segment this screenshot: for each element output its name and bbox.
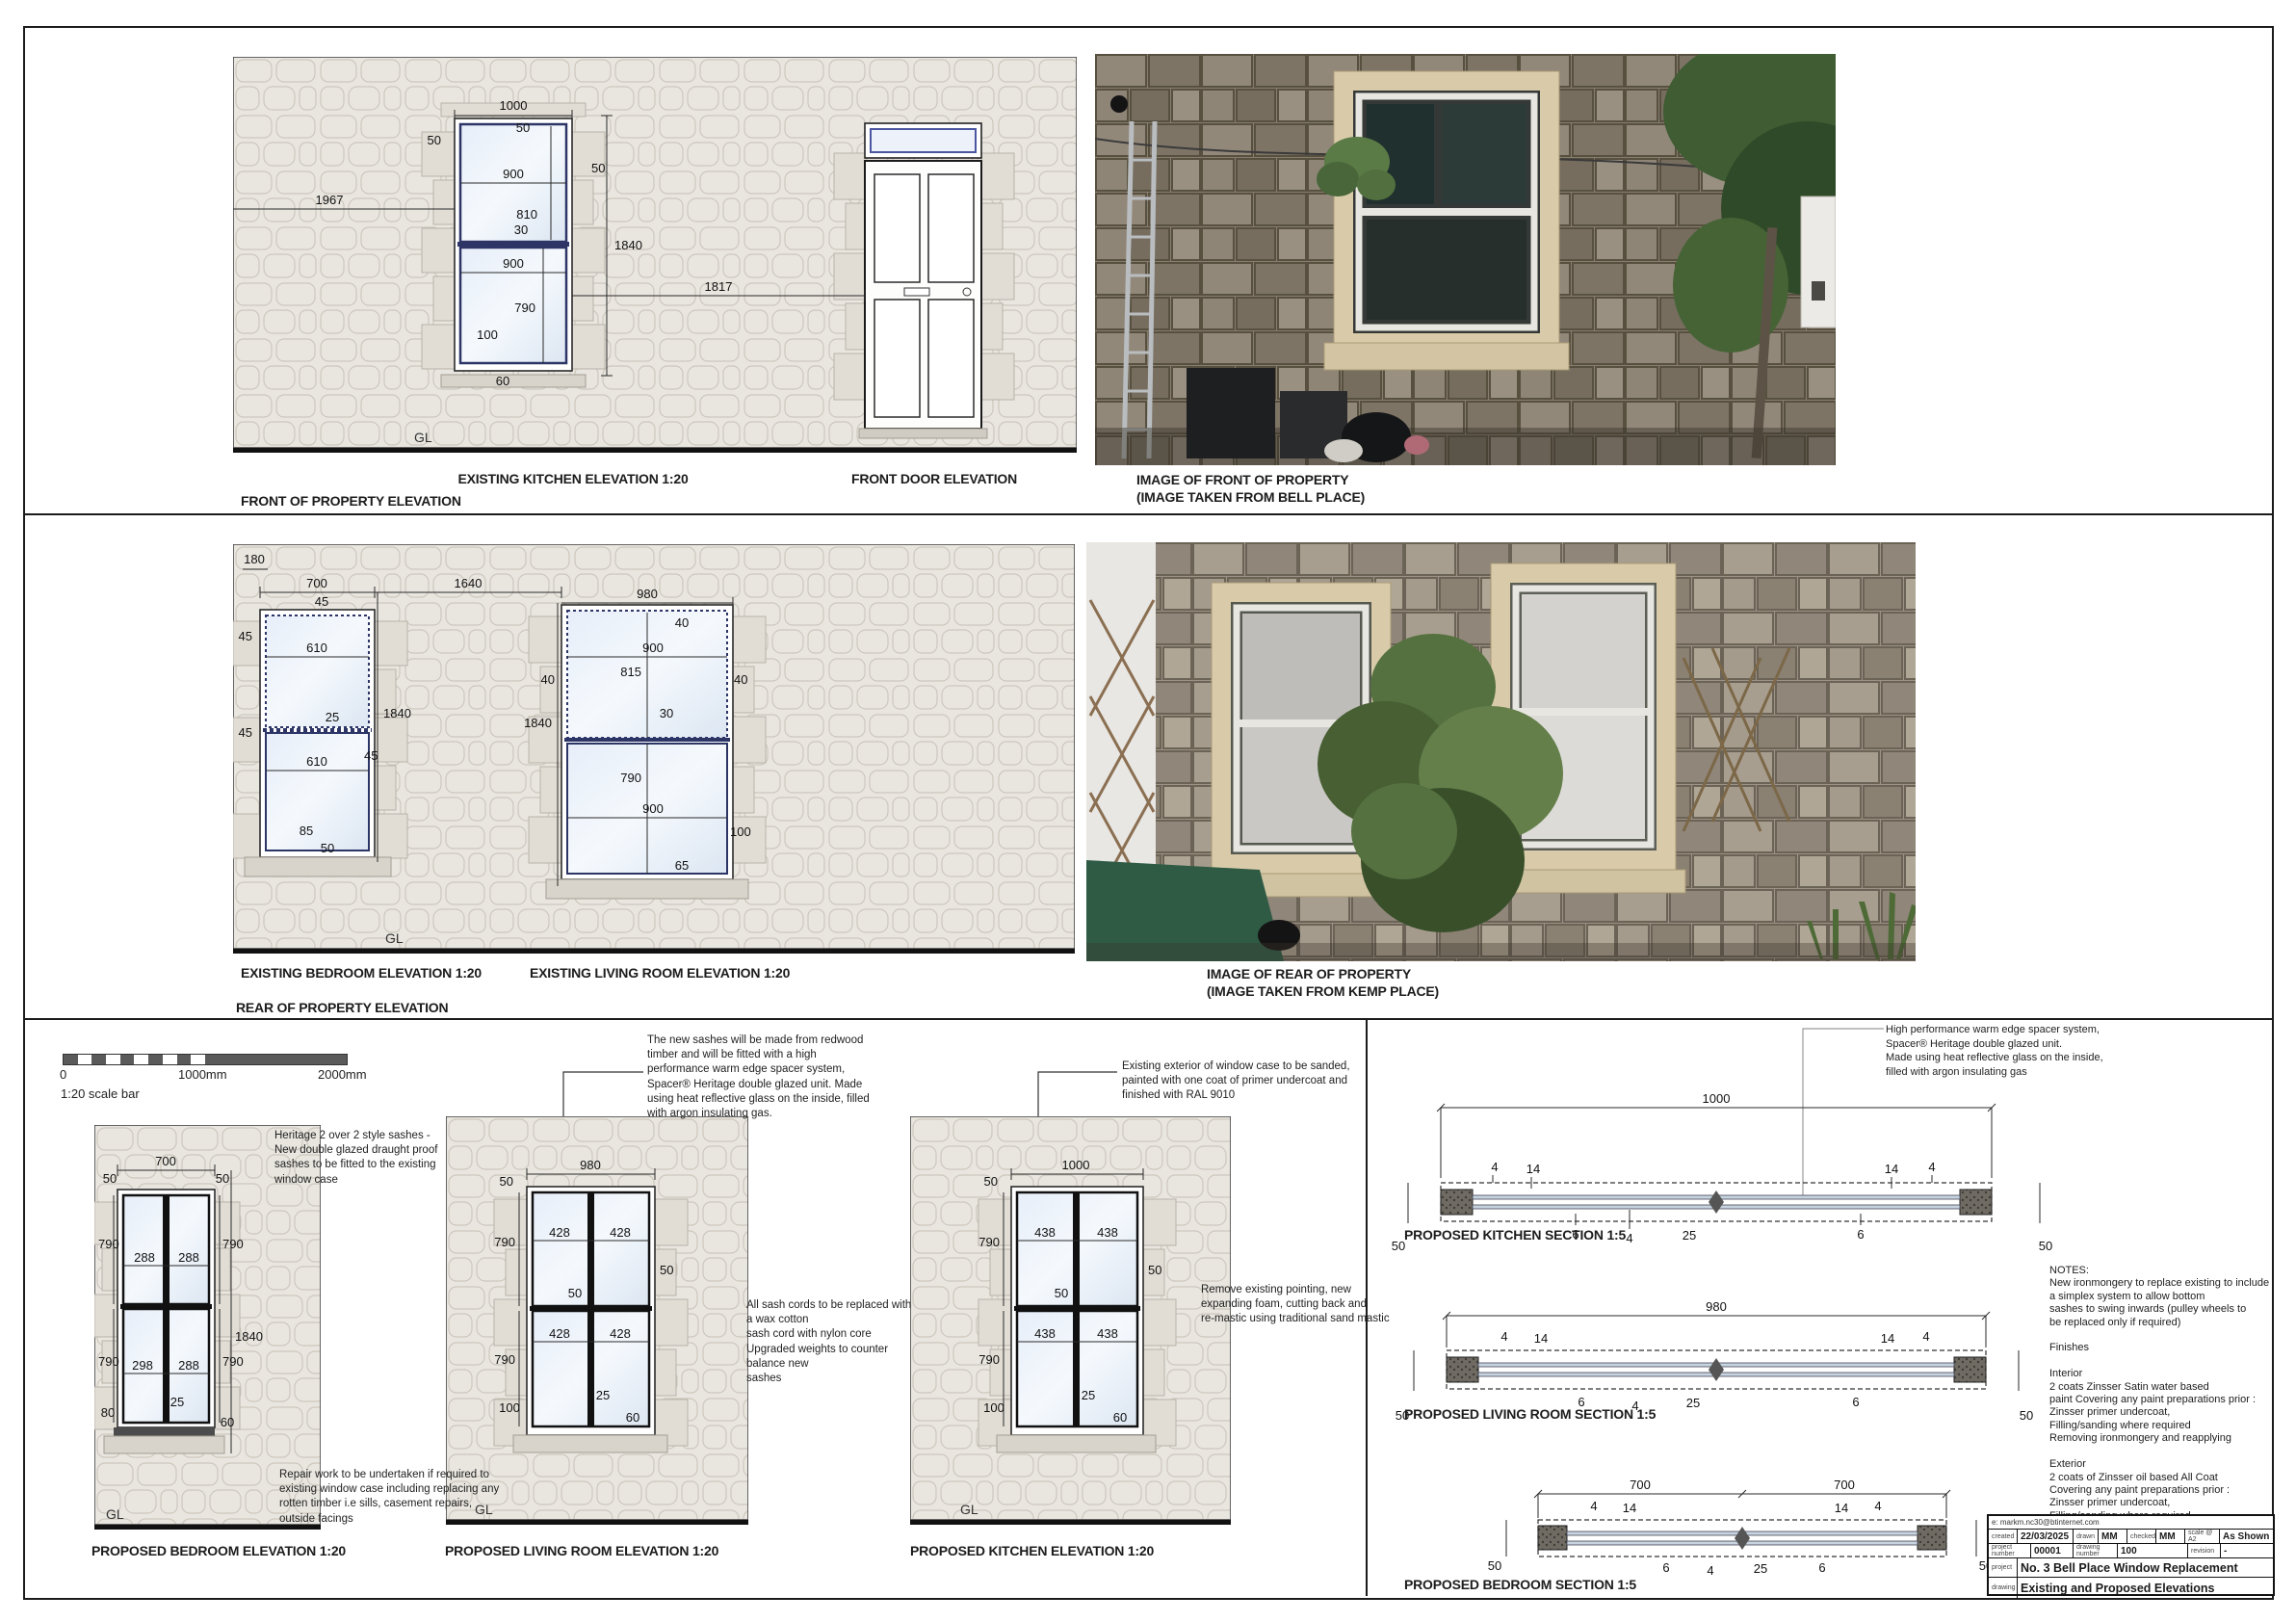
dim: 790: [98, 1354, 119, 1369]
living-note-right: All sash cords to be replaced with a wax…: [746, 1298, 963, 1386]
drawn-label: drawn: [2074, 1530, 2099, 1543]
dim: 50: [1148, 1263, 1161, 1277]
bedroom-note-bottom: Repair work to be undertaken if required…: [279, 1468, 530, 1527]
dim: 810: [516, 207, 537, 222]
dim: 14: [1881, 1331, 1894, 1346]
dim: 45: [315, 594, 328, 609]
front-elevation-drawing: 1000 50 50 900 810 50 1840 1967 30 900 7…: [233, 57, 1077, 454]
rear-photo-caption-1: IMAGE OF REAR OF PROPERTY: [1207, 966, 1411, 981]
dim: 50: [321, 841, 334, 855]
dim: 790: [98, 1237, 119, 1251]
scale-bar-zero: 0: [60, 1067, 66, 1082]
dim: 50: [2020, 1408, 2033, 1423]
sections-note: High performance warm edge spacer system…: [1886, 1023, 2126, 1079]
dim: 50: [516, 120, 530, 135]
dim: 100: [983, 1400, 1004, 1415]
scale-bar-end: 2000mm: [318, 1067, 367, 1082]
dim: 100: [730, 824, 751, 839]
strip-divider-2: [23, 1018, 2272, 1020]
dim: 14: [1885, 1162, 1898, 1176]
existing-kitchen-window: [441, 118, 586, 387]
dim: 1967: [316, 193, 344, 207]
front-photo: [1095, 54, 1836, 465]
dim: 50: [568, 1286, 582, 1300]
scale-value: As Shown: [2220, 1530, 2273, 1543]
strip-divider-1: [23, 513, 2272, 515]
checked-label: checked: [2127, 1530, 2156, 1543]
ground-shadow: [1086, 943, 1916, 961]
dim: 700: [1630, 1478, 1651, 1492]
ground-line: [910, 1520, 1231, 1525]
dim: 298: [132, 1358, 153, 1373]
sash-window: [1324, 71, 1569, 370]
dim: 85: [300, 824, 313, 838]
dim: 4: [1874, 1499, 1881, 1513]
dim: 60: [626, 1410, 639, 1425]
project-value: No. 3 Bell Place Window Replacement: [2018, 1558, 2273, 1577]
wall-lamp: [1110, 95, 1128, 113]
dim: 1640: [455, 576, 483, 590]
front-photo-caption-1: IMAGE OF FRONT OF PROPERTY: [1136, 472, 1348, 487]
proposed-kitchen-window: [997, 1187, 1156, 1452]
proposed-living-drawing: 980 50 790 428 428 50 50 428 428 790 100…: [446, 1116, 748, 1525]
dim: 25: [170, 1395, 184, 1409]
dim: 900: [503, 167, 524, 181]
dim: 610: [306, 641, 327, 655]
dim: 4: [1707, 1563, 1713, 1578]
dim: 80: [101, 1405, 115, 1420]
living-note-top: The new sashes will be made from redwood…: [647, 1033, 898, 1121]
existing-bedroom-caption: EXISTING BEDROOM ELEVATION 1:20: [241, 965, 453, 981]
gl-label: GL: [106, 1506, 124, 1522]
dim: 438: [1034, 1225, 1056, 1240]
drawing-label: drawing: [1989, 1578, 2018, 1598]
project-label: project: [1989, 1558, 2018, 1577]
rear-elevation-drawing: 180 700 45 45 610 25 45 45 610 1840 85 5…: [233, 544, 1075, 961]
dim: 980: [637, 587, 658, 601]
dim: 25: [1754, 1561, 1767, 1576]
dim: 6: [1818, 1560, 1825, 1575]
scale-label: scale @ A2: [2185, 1530, 2220, 1543]
dim: 45: [239, 725, 252, 740]
project-number-value: 00001: [2031, 1544, 2074, 1557]
dim: 428: [610, 1326, 631, 1341]
dim: 25: [1686, 1396, 1700, 1410]
dim: 14: [1623, 1501, 1636, 1515]
drawing-number-label: drawing number: [2074, 1544, 2118, 1557]
dim: 790: [620, 771, 641, 785]
dim: 45: [239, 629, 252, 643]
kitchen-note-top: Existing exterior of window case to be s…: [1122, 1060, 1411, 1104]
dim: 438: [1097, 1326, 1118, 1341]
dim: 60: [1113, 1410, 1127, 1425]
living-section-caption: PROPOSED LIVING ROOM SECTION 1:5: [1404, 1406, 1656, 1422]
dim: 790: [978, 1235, 1000, 1249]
proposed-living-caption: PROPOSED LIVING ROOM ELEVATION 1:20: [445, 1543, 718, 1558]
dim: 25: [1082, 1388, 1095, 1402]
created-label: created: [1989, 1530, 2018, 1543]
title-email: e: markm.nc30@btinternet.com: [1989, 1516, 2273, 1529]
drawing-value: Existing and Proposed Elevations: [2018, 1578, 2273, 1598]
created-value: 22/03/2025: [2018, 1530, 2074, 1543]
dim: 50: [428, 133, 441, 147]
dim: 30: [514, 222, 528, 237]
kitchen-section-caption: PROPOSED KITCHEN SECTION 1:5: [1404, 1227, 1626, 1243]
dim: 14: [1835, 1501, 1848, 1515]
dim: 50: [216, 1171, 229, 1186]
dim: 900: [503, 256, 524, 271]
dim: 25: [1683, 1228, 1696, 1243]
dim: 790: [978, 1352, 1000, 1367]
dim: 50: [103, 1171, 117, 1186]
dim: 700: [306, 576, 327, 590]
scale-bar-mid: 1000mm: [178, 1067, 227, 1082]
rear-photo-caption-2: (IMAGE TAKEN FROM KEMP PLACE): [1207, 983, 1439, 999]
white-door: [1801, 196, 1836, 327]
dim: 1000: [1703, 1091, 1731, 1106]
dim: 980: [580, 1158, 601, 1172]
dim: 1817: [705, 279, 733, 294]
dim: 6: [1662, 1560, 1669, 1575]
dim: 50: [591, 161, 605, 175]
dim: 50: [1055, 1286, 1068, 1300]
dim: 45: [364, 748, 378, 763]
dim: 288: [134, 1250, 155, 1265]
dim: 1840: [524, 716, 552, 730]
dim: 50: [984, 1174, 998, 1189]
front-door: [859, 123, 987, 438]
dim: 288: [178, 1358, 199, 1373]
proposed-living-window: [513, 1187, 667, 1452]
dim: 14: [1534, 1331, 1548, 1346]
dim: 428: [549, 1225, 570, 1240]
rear-elevation-label: REAR OF PROPERTY ELEVATION: [236, 1000, 448, 1015]
dim: 100: [477, 327, 498, 342]
dim: 700: [155, 1154, 176, 1168]
drawn-value: MM: [2099, 1530, 2127, 1543]
ground-line: [233, 448, 1077, 453]
dim: 980: [1706, 1299, 1727, 1314]
dim: 65: [675, 858, 689, 873]
dim: 815: [620, 665, 641, 679]
front-door-caption: FRONT DOOR ELEVATION: [819, 471, 1050, 486]
dim: 50: [1488, 1558, 1501, 1573]
ground-line: [233, 949, 1075, 954]
dim: 428: [610, 1225, 631, 1240]
dim: 438: [1097, 1225, 1118, 1240]
dim: 790: [494, 1235, 515, 1249]
dim: 6: [1857, 1227, 1864, 1242]
gl-label: GL: [960, 1502, 978, 1517]
dim: 50: [500, 1174, 513, 1189]
drawing-number-value: 100: [2118, 1544, 2188, 1557]
dim: 790: [494, 1352, 515, 1367]
dim: 4: [1626, 1231, 1632, 1245]
dim: 40: [734, 672, 747, 687]
dim: 4: [1590, 1499, 1597, 1513]
rear-photo: [1086, 542, 1916, 961]
dim: 900: [642, 801, 664, 816]
dim: 40: [541, 672, 555, 687]
dim: 790: [222, 1354, 244, 1369]
revision-label: revision: [2188, 1544, 2221, 1557]
notes-block: NOTES: New ironmongery to replace existi…: [2049, 1265, 2276, 1523]
dim: 790: [514, 301, 535, 315]
proposed-kitchen-caption: PROPOSED KITCHEN ELEVATION 1:20: [910, 1543, 1154, 1558]
dim: 60: [221, 1415, 234, 1429]
dim: 700: [1834, 1478, 1855, 1492]
existing-kitchen-caption: EXISTING KITCHEN ELEVATION 1:20: [414, 471, 732, 486]
dim: 50: [2039, 1239, 2052, 1253]
checked-value: MM: [2156, 1530, 2185, 1543]
dim: 4: [1491, 1160, 1498, 1174]
dim: 1840: [235, 1329, 263, 1344]
dim: 288: [178, 1250, 199, 1265]
project-number-label: project number: [1989, 1544, 2031, 1557]
dim: 100: [499, 1400, 520, 1415]
bedroom-section-caption: PROPOSED BEDROOM SECTION 1:5: [1404, 1577, 1636, 1592]
dim: 30: [660, 706, 673, 720]
dim: 6: [1852, 1395, 1859, 1409]
dim: 438: [1034, 1326, 1056, 1341]
gl-label: GL: [414, 430, 432, 445]
proposed-bedroom-caption: PROPOSED BEDROOM ELEVATION 1:20: [91, 1543, 346, 1558]
dim: 50: [660, 1263, 673, 1277]
proposed-bedroom-window: [104, 1190, 224, 1453]
gl-label: GL: [385, 930, 404, 946]
dim: 900: [642, 641, 664, 655]
dim: 14: [1526, 1162, 1540, 1176]
dim: 1000: [500, 98, 528, 113]
bedroom-section-drawing: 700 700 4 14 6 4 25 14 4 6 50 50: [1387, 1462, 2061, 1592]
dim: 40: [675, 615, 689, 630]
front-elevation-label: FRONT OF PROPERTY ELEVATION: [241, 493, 461, 509]
dim: 428: [549, 1326, 570, 1341]
title-block: e: markm.nc30@btinternet.com created 22/…: [1987, 1514, 2275, 1596]
dim: 180: [244, 552, 265, 566]
dim: 1840: [614, 238, 642, 252]
bedroom-note-top: Heritage 2 over 2 style sashes - New dou…: [274, 1129, 467, 1188]
dim: 4: [1928, 1160, 1935, 1174]
front-photo-caption-2: (IMAGE TAKEN FROM BELL PLACE): [1136, 489, 1365, 505]
dim: 4: [1500, 1329, 1507, 1344]
dim: 610: [306, 754, 327, 769]
revision-value: -: [2221, 1544, 2273, 1557]
dim: 60: [496, 374, 509, 388]
dim: 1000: [1062, 1158, 1090, 1172]
scale-bar: [63, 1054, 348, 1065]
existing-living-caption: EXISTING LIVING ROOM ELEVATION 1:20: [530, 965, 790, 981]
scale-bar-label: 1:20 scale bar: [61, 1086, 140, 1101]
dim: 25: [596, 1388, 610, 1402]
dim: 790: [222, 1237, 244, 1251]
dim: 1840: [383, 706, 411, 720]
dim: 25: [326, 710, 339, 724]
dim: 4: [1922, 1329, 1929, 1344]
